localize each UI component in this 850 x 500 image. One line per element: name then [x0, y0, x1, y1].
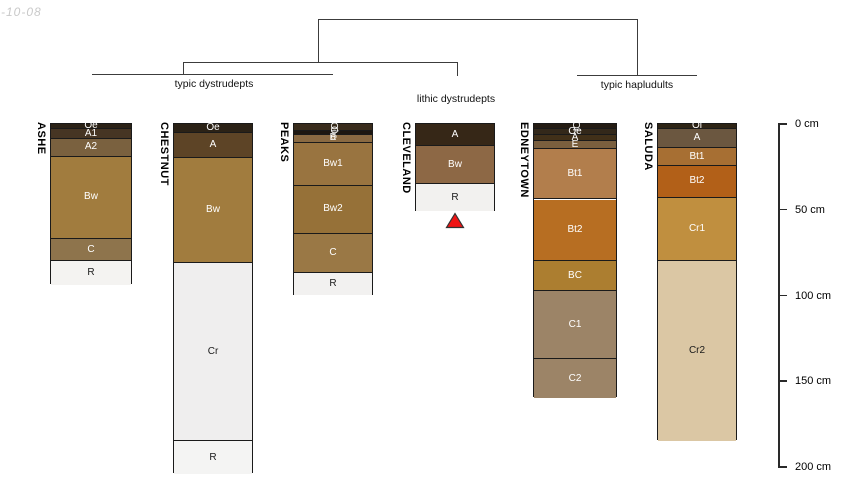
dendrogram-typic-dyst-bar	[92, 74, 333, 75]
soil-column-peaks: OiOeEBw1Bw2CR	[293, 123, 373, 295]
horizon-ashe-a2: A2	[51, 139, 131, 156]
horizon-edneytown-e: E	[534, 141, 616, 149]
profile-name-ashe: ASHE	[33, 122, 47, 155]
horizon-saluda-cr1: Cr1	[658, 198, 736, 262]
horizon-cleveland-bw: Bw	[416, 146, 494, 184]
horizon-chestnut-cr: Cr	[174, 263, 252, 441]
dendrogram-left-drop	[318, 19, 319, 63]
horizon-saluda-cr2: Cr2	[658, 261, 736, 441]
depth-tick-label-100: 100 cm	[795, 290, 831, 302]
horizon-peaks-bw2: Bw2	[294, 186, 372, 234]
date-watermark: -10-08	[1, 5, 42, 19]
horizon-cleveland-r: R	[416, 184, 494, 211]
horizon-ashe-c: C	[51, 239, 131, 261]
horizon-edneytown-bt1: Bt1	[534, 149, 616, 200]
soil-column-ashe: OeA1A2BwCR	[50, 123, 132, 284]
profile-name-cleveland: CLEVELAND	[398, 122, 412, 194]
horizon-peaks-bw1: Bw1	[294, 143, 372, 186]
depth-tick-150	[778, 380, 787, 382]
dendrogram-inner-line	[183, 62, 458, 63]
depth-tick-100	[778, 295, 787, 297]
soil-column-cleveland: ABwR	[415, 123, 495, 211]
horizon-chestnut-bw: Bw	[174, 158, 252, 263]
group-label-lithic-dystrudepts: lithic dystrudepts	[417, 93, 495, 105]
profile-name-chestnut: CHESTNUT	[156, 122, 170, 186]
horizon-peaks-e: E	[294, 135, 372, 143]
group-label-typic-hapludults: typic hapludults	[601, 79, 673, 91]
horizon-ashe-r: R	[51, 261, 131, 285]
soil-column-edneytown: OiOeAEBt1Bt2BCC1C2	[533, 123, 617, 397]
depth-tick-0	[778, 123, 787, 125]
horizon-chestnut-oe: Oe	[174, 124, 252, 133]
triangle-up-icon	[445, 212, 465, 229]
group-label-typic-dystrudepts: typic dystrudepts	[175, 78, 254, 90]
figure-canvas: -10-08 typic dystrudepts lithic dystrude…	[0, 0, 850, 500]
horizon-saluda-bt1: Bt1	[658, 148, 736, 166]
horizon-edneytown-c2: C2	[534, 359, 616, 398]
horizon-peaks-c: C	[294, 234, 372, 273]
horizon-edneytown-bc: BC	[534, 261, 616, 291]
horizon-cleveland-a: A	[416, 124, 494, 146]
horizon-edneytown-bt2: Bt2	[534, 200, 616, 262]
dendrogram-lithic-dyst-drop	[457, 62, 458, 76]
horizon-saluda-a: A	[658, 129, 736, 148]
dendrogram-root-line	[318, 19, 638, 20]
profile-name-peaks: PEAKS	[276, 122, 290, 162]
horizon-saluda-bt2: Bt2	[658, 166, 736, 198]
horizon-peaks-r: R	[294, 273, 372, 295]
profile-name-saluda: SALUDA	[640, 122, 654, 171]
horizon-chestnut-r: R	[174, 441, 252, 474]
depth-tick-label-200: 200 cm	[795, 461, 831, 473]
depth-tick-50	[778, 209, 787, 211]
horizon-ashe-bw: Bw	[51, 157, 131, 239]
depth-tick-label-0: 0 cm	[795, 118, 819, 130]
horizon-chestnut-a: A	[174, 133, 252, 159]
horizon-edneytown-c1: C1	[534, 291, 616, 359]
depth-tick-200	[778, 466, 787, 468]
soil-column-chestnut: OeABwCrR	[173, 123, 253, 473]
profile-name-edneytown: EDNEYTOWN	[516, 122, 530, 198]
depth-tick-label-150: 150 cm	[795, 375, 831, 387]
horizon-ashe-a1: A1	[51, 129, 131, 139]
dendrogram-typic-haplu-bar	[577, 75, 697, 76]
soil-column-saluda: OiABt1Bt2Cr1Cr2	[657, 123, 737, 440]
profile-marker-cleveland	[445, 212, 465, 234]
dendrogram-right-drop	[637, 19, 638, 76]
depth-tick-label-50: 50 cm	[795, 204, 825, 216]
